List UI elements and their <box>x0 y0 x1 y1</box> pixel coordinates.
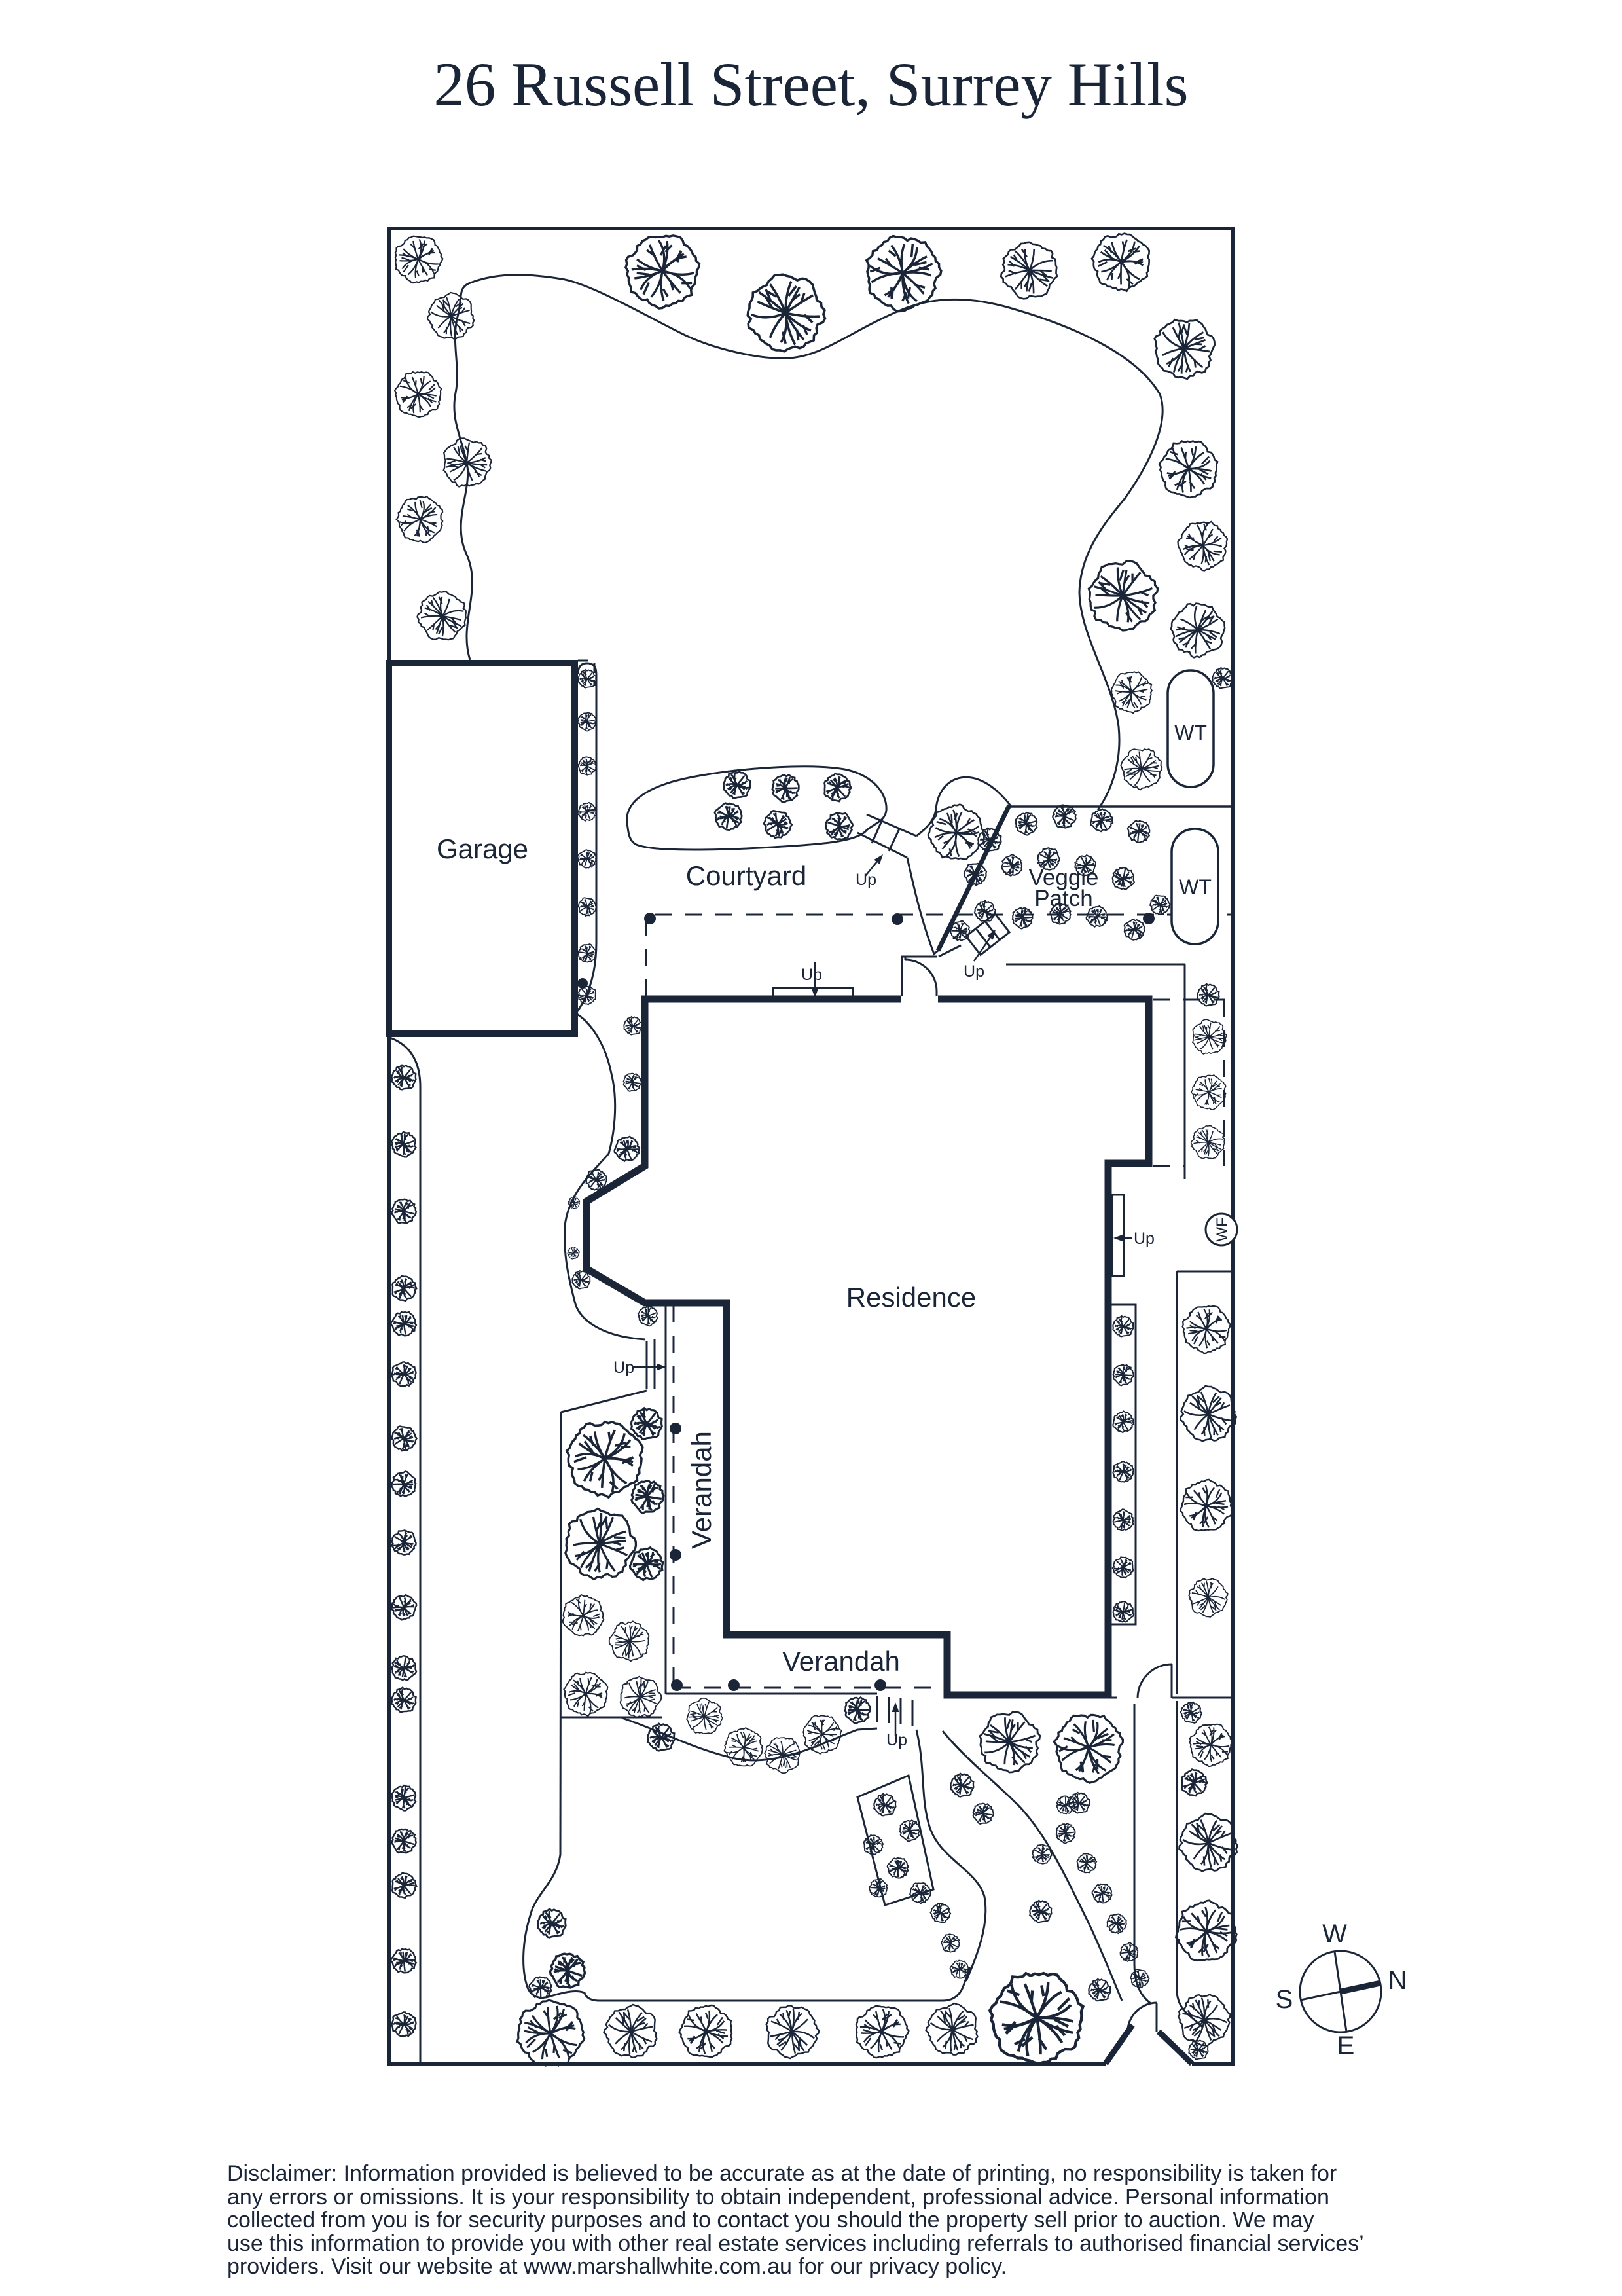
svg-text:Garage: Garage <box>437 833 528 864</box>
svg-text:Up: Up <box>964 962 984 981</box>
svg-text:Residence: Residence <box>846 1282 976 1313</box>
svg-text:Courtyard: Courtyard <box>686 860 806 891</box>
svg-text:Up: Up <box>801 966 822 984</box>
svg-text:Patch: Patch <box>1034 886 1093 911</box>
svg-text:S: S <box>1276 1985 1293 2014</box>
svg-text:Up: Up <box>856 871 876 889</box>
svg-text:Verandah: Verandah <box>782 1646 900 1677</box>
svg-text:N: N <box>1388 1966 1407 1995</box>
svg-text:WT: WT <box>1174 721 1207 744</box>
svg-text:WT: WT <box>1179 875 1212 899</box>
svg-text:W: W <box>1322 1920 1347 1948</box>
svg-text:E: E <box>1337 2032 1355 2060</box>
svg-text:Up: Up <box>886 1731 907 1749</box>
svg-text:WF: WF <box>1214 1217 1231 1241</box>
svg-text:Up: Up <box>613 1358 634 1377</box>
svg-text:Up: Up <box>1134 1230 1155 1248</box>
svg-text:Verandah: Verandah <box>686 1431 717 1549</box>
